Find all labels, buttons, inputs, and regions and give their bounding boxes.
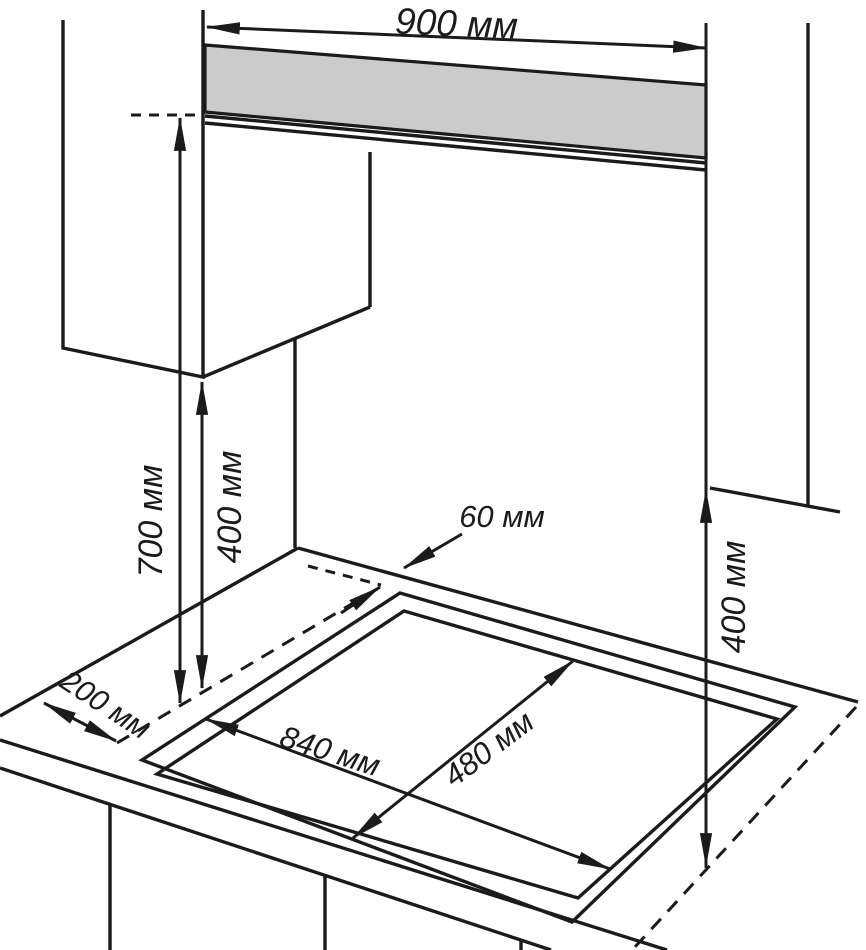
dim-label-480: 480 мм [437,704,540,794]
hob-left-edge-extension-dashed [117,589,377,743]
dim-label-400-right: 400 мм [715,541,753,654]
leader-arrow-to-wall [404,534,462,568]
cooker-hood-zone [205,45,706,170]
dimension-400-right: 400 мм [706,490,753,866]
installation-diagram: 900 мм 700 мм 400 мм 400 мм 60 мм 200 мм… [0,0,866,950]
countertop-front-bottom-edge [0,768,551,950]
dim-label-700: 700 мм [132,465,170,578]
dim-label-60: 60 мм [459,499,545,534]
dimension-480: 480 мм [353,661,573,838]
dimension-200: 200 мм [44,664,156,746]
dim-label-400-left: 400 мм [211,451,249,564]
dim-label-900: 900 мм [394,1,518,47]
dimension-700: 700 мм [132,118,180,703]
dimension-400-left: 400 мм [202,382,249,688]
right-wall-cabinet [710,23,840,512]
countertop-right-edge-dashed [634,707,856,948]
diagram-canvas: 900 мм 700 мм 400 мм 400 мм 60 мм 200 мм… [0,0,866,950]
dimension-60: 60 мм [341,499,545,613]
dim-label-840: 840 мм [276,719,385,783]
